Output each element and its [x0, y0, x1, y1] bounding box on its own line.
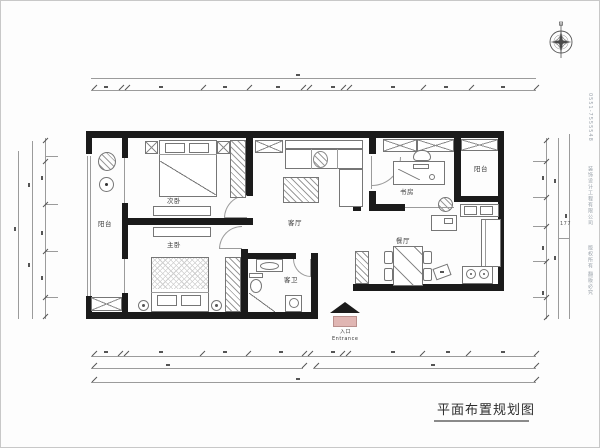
sofa-chaise	[339, 169, 363, 207]
wall	[454, 138, 461, 196]
title-underline	[434, 420, 529, 422]
entrance-mat	[333, 316, 357, 327]
dimension-text-mark	[223, 86, 227, 88]
dimension-note: 177	[560, 222, 571, 227]
pillow	[189, 143, 209, 153]
dimension-text-mark	[331, 351, 335, 353]
watermark-text: 0551-7555548 装饰设计工程有限公司 版权所有 翻版必究	[586, 93, 593, 445]
dimension-text-mark	[166, 364, 170, 366]
entrance-label-en: Entrance	[332, 337, 358, 342]
window-line	[124, 158, 125, 203]
dimension-extension	[45, 204, 58, 205]
dimension-line	[546, 138, 547, 319]
watermark-seg2: 装饰设计工程有限公司	[586, 166, 593, 226]
sink-basin	[480, 206, 493, 215]
shoe-cabinet	[255, 140, 283, 153]
room-label-balcony-right: 阳台	[474, 166, 488, 173]
wall	[86, 312, 318, 319]
dimension-text-mark	[223, 351, 227, 353]
dimension-tick	[302, 363, 308, 369]
storage-cabinet	[91, 297, 122, 311]
dimension-text-mark	[41, 231, 43, 235]
dimension-line	[91, 356, 536, 357]
door-leaf	[224, 217, 247, 218]
dimension-text-mark	[41, 176, 43, 180]
dimension-text-mark	[28, 263, 30, 267]
chair	[384, 251, 393, 264]
bed-line	[159, 154, 217, 155]
door-arc	[219, 226, 242, 249]
door-arc	[224, 195, 247, 218]
pillow	[181, 295, 201, 306]
lamp-center	[215, 304, 218, 307]
watermark-seg1: 0551-7555548	[586, 93, 593, 142]
chair	[384, 268, 393, 281]
nightstand-lamp	[217, 141, 230, 154]
dimension-text-mark	[501, 351, 505, 353]
room-label-dining: 餐厅	[396, 238, 410, 245]
dimension-text-mark	[296, 378, 300, 380]
dimension-text-mark	[279, 351, 283, 353]
dimension-tick	[534, 85, 540, 91]
dimension-text-mark	[431, 364, 435, 366]
dimension-text-mark	[446, 351, 450, 353]
kitchen-counter	[481, 219, 501, 267]
dimension-text-mark	[104, 351, 108, 353]
toilet-tank	[249, 273, 263, 278]
wardrobe	[230, 140, 246, 198]
plant	[98, 152, 116, 171]
dimension-text-mark	[104, 86, 108, 88]
dimension-tick	[534, 351, 540, 357]
dimension-tick	[534, 377, 540, 383]
lamp-center	[142, 304, 145, 307]
dimension-line	[91, 78, 536, 79]
shower-door	[249, 293, 275, 312]
wall	[86, 138, 92, 154]
tv-cabinet	[153, 227, 211, 237]
burner-center	[470, 273, 472, 275]
dimension-text-mark	[41, 276, 43, 280]
wall	[86, 131, 504, 138]
wall	[122, 218, 253, 225]
dimension-text-mark	[296, 74, 300, 76]
dimension-line	[313, 368, 536, 369]
room-label-balcony-left: 阳台	[98, 221, 112, 228]
fridge-panel	[444, 218, 453, 224]
dimension-line	[91, 368, 303, 369]
storage-cabinet	[461, 139, 498, 151]
wardrobe	[225, 257, 241, 312]
dimension-text-mark	[391, 86, 395, 88]
wall	[122, 293, 128, 312]
wall	[369, 138, 376, 154]
floor-plan-canvas: 阳台 次卧 主卧 客厅 客卫 书房 阳台 餐厅	[0, 0, 600, 448]
desk-cup	[429, 174, 435, 180]
entrance-arrow-icon	[330, 302, 360, 313]
dimension-text-mark	[554, 256, 556, 260]
dimension-line	[45, 138, 46, 319]
dimension-text-mark	[159, 86, 163, 88]
dimension-text-mark	[28, 183, 30, 187]
dimension-text-mark	[542, 246, 544, 250]
dimension-text-mark	[501, 86, 505, 88]
tv-cabinet	[153, 206, 211, 216]
chair	[423, 251, 432, 264]
wall	[454, 196, 504, 202]
wall	[122, 138, 128, 158]
desk-pen	[398, 169, 420, 180]
bed-line	[151, 292, 209, 293]
wall	[353, 284, 504, 291]
room-label-living-room: 客厅	[288, 220, 302, 227]
wall	[311, 253, 318, 319]
watermark-seg3: 版权所有 翻版必究	[586, 245, 593, 296]
toilet-bowl	[250, 279, 262, 293]
dimension-text-mark	[542, 176, 544, 180]
closet	[383, 139, 417, 152]
dimension-line	[18, 151, 19, 319]
sofa-cushion-line	[311, 149, 312, 169]
dimension-text-mark	[554, 179, 556, 183]
sink-basin	[464, 206, 477, 215]
wall	[241, 249, 248, 312]
bed-blanket	[152, 258, 208, 289]
wall	[246, 138, 253, 196]
room-label-guest-bath: 客卫	[284, 277, 298, 284]
desk-chair	[413, 150, 431, 161]
window-line	[87, 156, 88, 296]
plant	[438, 197, 453, 212]
dimension-text-mark	[391, 351, 395, 353]
dimension-extension	[45, 297, 58, 298]
door-leaf	[219, 248, 242, 249]
sofa-back	[285, 140, 363, 149]
dimension-extension	[45, 251, 58, 252]
dimension-tick	[534, 363, 540, 369]
dimension-text-mark	[331, 86, 335, 88]
bed-blanket-line	[160, 161, 216, 195]
dimension-line	[91, 382, 536, 383]
dimension-line	[558, 138, 559, 319]
pillow	[165, 143, 185, 153]
dimension-line	[32, 141, 33, 319]
dining-table	[393, 246, 423, 286]
sink-basin	[260, 262, 279, 270]
side-table-mark	[440, 271, 444, 273]
dimension-text-mark	[565, 214, 567, 218]
round-stool-center	[105, 183, 108, 186]
window-line	[124, 259, 125, 293]
chair	[423, 268, 432, 281]
page-title: 平面布置规划图	[437, 404, 535, 417]
compass-icon	[545, 21, 577, 61]
window-line	[90, 156, 91, 296]
door-leaf	[371, 156, 372, 189]
door-arc	[293, 259, 311, 277]
pillow	[157, 295, 177, 306]
rug	[283, 177, 319, 203]
burner-center	[483, 273, 485, 275]
wall	[122, 203, 128, 259]
counter-line	[485, 220, 486, 266]
dimension-text-mark	[276, 86, 280, 88]
tall-cabinet	[355, 251, 369, 284]
nightstand-lamp	[145, 141, 158, 154]
door-leaf	[310, 259, 311, 277]
washer-drum	[289, 298, 299, 308]
wall	[369, 204, 405, 211]
dimension-connector	[558, 238, 570, 239]
dimension-text-mark	[444, 86, 448, 88]
room-label-study: 书房	[400, 189, 414, 196]
sofa-decor-figure	[313, 151, 328, 168]
dimension-tick	[544, 315, 550, 321]
dimension-extension	[45, 156, 58, 157]
room-label-master-bedroom: 主卧	[167, 242, 181, 249]
sofa-cushion-line	[337, 149, 338, 169]
dimension-text-mark	[159, 351, 163, 353]
entrance-label-cn: 入口	[340, 330, 351, 335]
dimension-text-mark	[542, 291, 544, 295]
dimension-text-mark	[14, 227, 16, 231]
room-label-second-bedroom: 次卧	[167, 198, 181, 205]
